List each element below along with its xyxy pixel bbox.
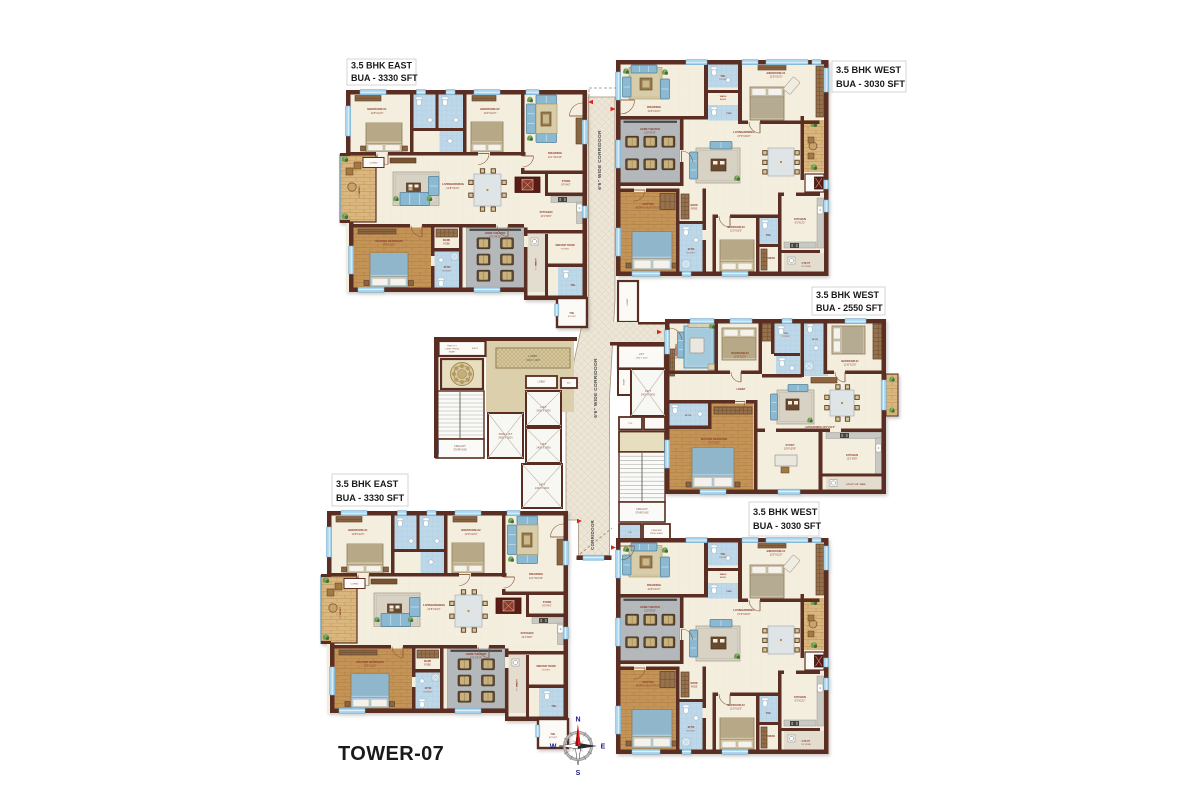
svg-text:21'8"X13'2": 21'8"X13'2" [427, 607, 440, 611]
svg-text:22'6"X12'0": 22'6"X12'0" [648, 588, 661, 591]
svg-text:3.5 BHK WEST: 3.5 BHK WEST [753, 507, 818, 517]
svg-text:A/C: A/C [567, 382, 571, 385]
svg-text:ROBE: ROBE [443, 242, 450, 245]
svg-text:7'6"X4'6": 7'6"X4'6" [719, 79, 728, 81]
svg-text:M.TOI: M.TOI [688, 248, 695, 251]
svg-text:BUA - 3330 SFT: BUA - 3330 SFT [336, 493, 404, 503]
svg-text:LOBBY PRESS: LOBBY PRESS [445, 349, 460, 351]
svg-text:BEDROOM-01: BEDROOM-01 [767, 71, 786, 75]
svg-text:12'8"X12'0": 12'8"X12'0" [352, 533, 365, 536]
svg-text:UTILITY: UTILITY [802, 741, 811, 743]
svg-text:LOBBY: LOBBY [528, 354, 537, 358]
svg-text:BEDROOM-01: BEDROOM-01 [367, 107, 387, 111]
svg-text:4'0" WIDE: 4'0" WIDE [359, 188, 361, 198]
svg-text:LIVING/DINING: LIVING/DINING [442, 182, 465, 186]
svg-text:LOBBY: LOBBY [736, 387, 745, 391]
svg-text:DRAWING: DRAWING [529, 572, 544, 576]
svg-text:LOBBY: LOBBY [627, 298, 629, 306]
svg-text:11'10"X11'6": 11'10"X11'6" [844, 365, 857, 367]
svg-text:KITCHEN: KITCHEN [794, 217, 806, 221]
svg-text:LIFT: LIFT [639, 353, 644, 356]
svg-text:10'1"X9'10": 10'1"X9'10" [489, 236, 501, 239]
svg-text:STAIRCASE: STAIRCASE [453, 449, 467, 452]
svg-text:TOIL: TOIL [784, 333, 790, 335]
svg-text:HOME THEATER: HOME THEATER [640, 606, 660, 609]
svg-text:2400 X 3000: 2400 X 3000 [498, 437, 513, 440]
svg-text:15'8"X12'0": 15'8"X12'0" [383, 244, 396, 247]
svg-text:12'0"X12'0": 12'0"X12'0" [465, 533, 478, 536]
svg-text:7'0"X8'0": 7'0"X8'0" [542, 669, 551, 671]
svg-text:TOIL: TOIL [569, 313, 575, 315]
svg-text:2400 X 2400: 2400 X 2400 [641, 394, 656, 397]
svg-text:MASTER: MASTER [643, 202, 654, 206]
svg-text:TOIL: TOIL [550, 734, 556, 736]
svg-text:BUA - 3030 SFT: BUA - 3030 SFT [836, 79, 905, 89]
svg-text:7'6"X4'6": 7'6"X4'6" [719, 557, 728, 559]
svg-text:E: E [601, 744, 606, 751]
svg-text:4'0" WIDE: 4'0" WIDE [340, 609, 342, 619]
svg-text:6'6" WIDE CORRIDOOR: 6'6" WIDE CORRIDOOR [597, 130, 603, 190]
svg-text:12'0"X12'0": 12'0"X12'0" [484, 112, 497, 115]
svg-text:3.5 BHK WEST: 3.5 BHK WEST [836, 65, 901, 75]
svg-text:BUA - 3330 SFT: BUA - 3330 SFT [351, 73, 418, 83]
svg-text:DRAWING: DRAWING [548, 151, 563, 155]
svg-text:BEDROOM 16'0"X12'0": BEDROOM 16'0"X12'0" [636, 686, 660, 688]
svg-text:5'7" WIDE: 5'7" WIDE [536, 260, 538, 270]
svg-text:11'0"X11'6": 11'0"X11'6" [730, 708, 742, 711]
svg-text:MASTER: MASTER [643, 680, 654, 684]
svg-text:W: W [550, 744, 557, 751]
svg-text:6'0"X4'0": 6'0"X4'0" [568, 316, 577, 318]
svg-text:KITCHEN: KITCHEN [794, 695, 806, 699]
svg-text:TOIL: TOIL [720, 554, 726, 556]
svg-text:S: S [576, 770, 581, 777]
svg-text:7'0"X8'0": 7'0"X8'0" [561, 248, 570, 250]
svg-text:PWD: PWD [726, 591, 732, 593]
svg-text:13'2"X9'10": 13'2"X9'10" [644, 610, 656, 612]
svg-text:BEDROOM-02: BEDROOM-02 [461, 528, 481, 532]
svg-text:CUPBD: CUPBD [351, 584, 359, 586]
svg-text:WASH: WASH [720, 95, 727, 98]
svg-text:12'0"X12'0": 12'0"X12'0" [770, 554, 783, 557]
svg-text:21'8"X13'2": 21'8"X13'2" [446, 186, 459, 190]
svg-text:LOBBY: LOBBY [538, 381, 546, 384]
svg-text:CORRIDOOR: CORRIDOOR [590, 519, 595, 550]
svg-text:M.TOI: M.TOI [685, 415, 691, 417]
svg-text:LIFT: LIFT [540, 442, 546, 446]
svg-text:FIRE LIFT: FIRE LIFT [499, 432, 513, 436]
svg-text:6'0"X4'0": 6'0"X4'0" [549, 737, 558, 739]
svg-text:SHELT: SHELT [472, 348, 479, 350]
svg-text:BEDROOM-02: BEDROOM-02 [731, 351, 749, 355]
svg-text:2400 X 2400: 2400 X 2400 [536, 410, 551, 413]
svg-text:BEDROOM-01: BEDROOM-01 [348, 528, 368, 532]
svg-text:BEDROOM-01: BEDROOM-01 [767, 549, 786, 553]
svg-text:TOIL: TOIL [720, 76, 726, 78]
svg-text:5'7" WIDE: 5'7" WIDE [517, 681, 519, 691]
svg-text:8'0"X4'0": 8'0"X4'0" [542, 605, 551, 607]
svg-text:HOME THEATER: HOME THEATER [485, 231, 506, 235]
svg-text:TOIL: TOIL [766, 235, 772, 237]
svg-text:UTILITY 9'4" WIDE: UTILITY 9'4" WIDE [846, 483, 866, 486]
svg-text:STAIRCASE: STAIRCASE [651, 529, 662, 532]
svg-text:LIFT: LIFT [539, 483, 545, 487]
svg-text:5400 X 1825: 5400 X 1825 [526, 359, 540, 362]
svg-text:KITCHEN: KITCHEN [846, 453, 858, 457]
svg-text:LIVING/DINING: LIVING/DINING [733, 130, 755, 134]
svg-text:BASIN: BASIN [720, 98, 727, 101]
svg-text:WARD: WARD [690, 682, 698, 685]
svg-text:9'1"X12'1": 9'1"X12'1" [795, 700, 806, 703]
svg-text:SHAFT: SHAFT [623, 378, 626, 385]
svg-text:HOME THEATER: HOME THEATER [466, 652, 487, 656]
svg-text:DRESS: DRESS [767, 258, 775, 260]
svg-text:LIVING/DINING: LIVING/DINING [423, 603, 446, 607]
svg-text:11'10"X11'6": 11'10"X11'6" [734, 357, 747, 359]
svg-text:BEDROOM 16'0"X12'0": BEDROOM 16'0"X12'0" [636, 208, 660, 210]
svg-text:27'6"X16'0": 27'6"X16'0" [737, 612, 750, 616]
svg-text:DRESS: DRESS [767, 736, 775, 738]
svg-text:6'6" WIDE CORRIDOOR: 6'6" WIDE CORRIDOOR [593, 358, 599, 418]
svg-text:FIRE LIFT: FIRE LIFT [447, 346, 457, 348]
svg-text:BEDROOM-01: BEDROOM-01 [841, 359, 859, 363]
svg-text:M.TOI: M.TOI [688, 726, 695, 729]
svg-text:SHAFT: SHAFT [449, 351, 457, 354]
svg-text:M.TOI: M.TOI [444, 266, 451, 269]
svg-text:DRAWING: DRAWING [647, 105, 662, 109]
svg-text:BEDROOM-02: BEDROOM-02 [480, 107, 500, 111]
svg-text:8'0"X5'0": 8'0"X5'0" [424, 691, 433, 693]
svg-text:3.5 BHK EAST: 3.5 BHK EAST [336, 479, 399, 489]
svg-text:8'0"X4'0": 8'0"X4'0" [561, 184, 570, 186]
svg-text:22'6"X12'0": 22'6"X12'0" [648, 110, 661, 113]
svg-text:STORE: STORE [543, 601, 552, 604]
svg-text:ROBE: ROBE [691, 686, 698, 688]
svg-text:12'0"X12'0": 12'0"X12'0" [770, 76, 783, 79]
svg-text:11'0"X11'6": 11'0"X11'6" [730, 230, 742, 233]
svg-text:LIVING/DINING: LIVING/DINING [733, 608, 755, 612]
svg-text:9'0" WIDE: 9'0" WIDE [801, 744, 811, 746]
svg-text:12'2"X8'0": 12'2"X8'0" [847, 458, 858, 461]
svg-text:LIFT: LIFT [540, 405, 546, 409]
svg-text:UTILITY: UTILITY [802, 263, 811, 265]
svg-text:M.TOI: M.TOI [425, 687, 432, 690]
svg-text:7'6"X4'6": 7'6"X4'6" [782, 336, 790, 338]
svg-text:13'2"X9'10": 13'2"X9'10" [644, 132, 656, 134]
svg-text:WARD: WARD [690, 204, 698, 207]
svg-text:16'4"X11'2": 16'4"X11'2" [708, 442, 720, 445]
svg-text:2400 X 2400: 2400 X 2400 [636, 358, 649, 360]
svg-text:STAIRCASE: STAIRCASE [635, 512, 649, 515]
svg-text:TOIL: TOIL [766, 713, 772, 715]
svg-text:KITCHEN: KITCHEN [540, 210, 553, 214]
svg-text:2400 X 2400: 2400 X 2400 [536, 447, 551, 450]
svg-text:SERVANT ROOM: SERVANT ROOM [536, 665, 555, 668]
svg-text:BUA - 3030 SFT: BUA - 3030 SFT [753, 521, 821, 531]
svg-text:MASTER BEDROOM: MASTER BEDROOM [375, 239, 403, 243]
svg-text:ROBE: ROBE [691, 208, 698, 210]
svg-text:ROBE: ROBE [424, 663, 431, 666]
svg-text:TOIL: TOIL [551, 706, 557, 708]
svg-text:BASIN: BASIN [720, 576, 727, 579]
svg-text:SERVANT ROOM: SERVANT ROOM [555, 244, 574, 247]
svg-text:9'0" WIDE: 9'0" WIDE [801, 266, 811, 268]
svg-text:3.5 BHK WEST: 3.5 BHK WEST [816, 290, 880, 300]
svg-text:BUA - 2550 SFT: BUA - 2550 SFT [816, 303, 883, 313]
svg-text:HOME THEATER: HOME THEATER [640, 128, 660, 131]
svg-text:PWD: PWD [726, 113, 732, 115]
svg-text:TOIL: TOIL [570, 285, 576, 287]
svg-text:N: N [575, 717, 580, 724]
svg-text:CUPBD: CUPBD [370, 163, 378, 165]
svg-text:12'8"X12'0": 12'8"X12'0" [371, 112, 384, 115]
svg-text:2400 X 2400: 2400 X 2400 [535, 487, 550, 490]
svg-text:MASTER BEDROOM: MASTER BEDROOM [356, 660, 384, 664]
svg-text:27'6"X16'0": 27'6"X16'0" [737, 134, 750, 138]
svg-text:8'0"X5'0": 8'0"X5'0" [687, 252, 696, 254]
svg-text:KITCHEN: KITCHEN [521, 631, 534, 635]
svg-text:MASTER BEDROOM: MASTER BEDROOM [701, 437, 728, 441]
svg-text:M.TOI: M.TOI [812, 339, 818, 341]
svg-text:13'1"X8'0": 13'1"X8'0" [521, 636, 532, 639]
svg-text:11'1"X16'6": 11'1"X16'6" [676, 348, 678, 360]
svg-text:PRESS SHAFT: PRESS SHAFT [650, 532, 664, 535]
svg-text:8'0"X5'0": 8'0"X5'0" [687, 730, 696, 732]
svg-text:STUDY: STUDY [785, 443, 794, 447]
svg-text:10'1"X9'10": 10'1"X9'10" [470, 657, 482, 660]
svg-text:LIFT: LIFT [645, 389, 651, 393]
svg-text:15'8"X12'0": 15'8"X12'0" [364, 665, 377, 668]
svg-text:10'9"X10'9": 10'9"X10'9" [784, 448, 796, 451]
svg-text:STORE: STORE [562, 180, 571, 183]
svg-text:9'1"X12'1": 9'1"X12'1" [795, 222, 806, 225]
svg-text:8'0"X5'0": 8'0"X5'0" [443, 270, 452, 272]
svg-text:DRAWING: DRAWING [647, 583, 662, 587]
svg-text:12'1"X16'10": 12'1"X16'10" [548, 156, 562, 159]
svg-text:TOWER-07: TOWER-07 [338, 743, 444, 765]
svg-text:3.5 BHK EAST: 3.5 BHK EAST [351, 61, 413, 71]
svg-text:WASH: WASH [720, 573, 727, 576]
svg-text:13'1"X8'0": 13'1"X8'0" [540, 215, 551, 218]
svg-text:12'1"X16'10": 12'1"X16'10" [529, 577, 543, 580]
